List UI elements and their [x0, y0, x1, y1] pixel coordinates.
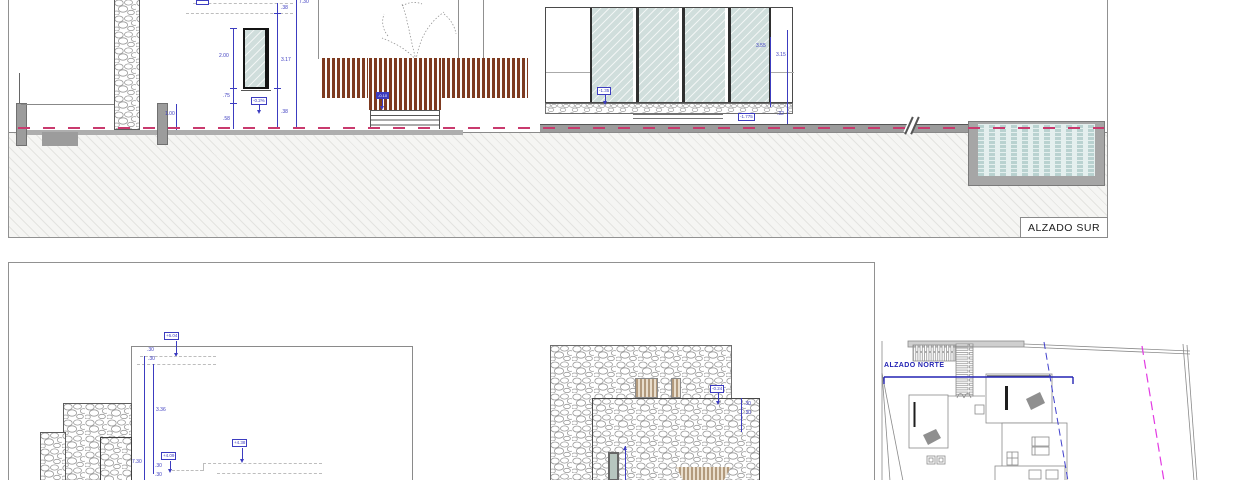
roofline-dash-riser — [203, 463, 204, 471]
fence-post-left — [16, 103, 27, 146]
dim-line-wall-total — [296, 0, 297, 129]
dim-pavilion-base: .32 — [777, 112, 784, 117]
roofline-dash-lower — [217, 473, 322, 474]
tree-sketch — [358, 0, 483, 62]
dim-cap-b: .30 — [148, 357, 155, 362]
boundary-line-magenta-dashed — [1142, 346, 1164, 480]
dim-base-band: .38 — [281, 110, 288, 115]
dim-tick — [274, 88, 281, 89]
dim-chimney-a: .30 — [744, 402, 751, 407]
dim-plinth: .58 — [223, 117, 230, 122]
pool-water — [978, 124, 1095, 176]
vent-trapezoid — [675, 467, 732, 480]
dim-line-north-total — [144, 356, 145, 480]
dim-tick — [230, 28, 237, 29]
wall-edge — [318, 0, 319, 59]
south-title: ALZADO SUR — [1028, 222, 1100, 234]
dim-roof-edge: .38 — [281, 6, 288, 11]
roofline-dash-low — [172, 470, 203, 471]
grade-line-red-dashed — [18, 127, 1104, 129]
leader-roof-mid — [242, 448, 243, 459]
dim-opening-total: 3.17 — [281, 58, 291, 63]
leader-parapet — [718, 392, 719, 401]
drawing-canvas: 1.00 2.00 .75 .58 .38 3.17 .38 7.30 -0.2… — [0, 0, 1250, 480]
dim-tick — [274, 13, 281, 14]
glass-panel-4 — [728, 8, 771, 102]
dim-line-upper-wall — [153, 364, 154, 474]
window-south — [243, 28, 269, 89]
level-tag-cut — [196, 0, 209, 5]
dim-tick — [230, 103, 237, 104]
dim-line-opening — [277, 3, 278, 129]
arrow-parapet — [716, 401, 720, 405]
dim-wall-total: 7.30 — [299, 0, 309, 5]
pavilion-stone-base — [545, 103, 793, 114]
arrow-window-north — [623, 446, 627, 450]
glass-pavilion — [545, 7, 793, 103]
dim-window-sill: .75 — [223, 94, 230, 99]
dim-pavilion-total: 3.15 — [776, 53, 786, 58]
pavilion-rail-right — [771, 72, 794, 73]
dim-upper-wall: 3.36 — [156, 408, 166, 413]
dim-fence-height: 1.00 — [165, 112, 175, 117]
leader-roof-low — [170, 461, 171, 469]
ground-hatch-south — [9, 132, 1107, 237]
dim-tick — [230, 88, 237, 89]
stone-column — [114, 0, 140, 130]
arrow-deck — [380, 106, 384, 110]
roofline-dash-mid — [203, 463, 322, 464]
level-tag-roof-mid: +4.38 — [232, 439, 247, 447]
dim-window-height: 2.00 — [219, 54, 229, 59]
pavilion-step — [633, 114, 723, 119]
stone-wall-step-low — [40, 432, 66, 480]
stone-wall-step-inner — [100, 437, 132, 480]
roof-slat-box-b — [671, 378, 681, 398]
ground-slab-left — [18, 130, 463, 135]
fence-post-right — [157, 103, 168, 145]
wood-slat-screen-left — [322, 58, 368, 98]
fence-rail — [21, 104, 116, 105]
slit-window-north — [608, 452, 619, 480]
north-building — [131, 346, 413, 480]
dim-cap-a: .30 — [147, 348, 154, 353]
dim-chimney-b: .30 — [744, 411, 751, 416]
wood-slat-screen-center — [369, 58, 441, 110]
dim-north-total: 7.30 — [132, 460, 142, 465]
dim-line-pavilion-total — [787, 30, 788, 129]
north-title: ALZADO NORTE — [884, 362, 944, 369]
fence-pole — [19, 73, 20, 103]
south-title-box: ALZADO SUR — [1020, 217, 1108, 238]
pavilion-rail-left — [546, 72, 590, 73]
wood-slat-screen-right — [442, 58, 528, 98]
level-tag-roof-low: +4.09 — [161, 452, 176, 460]
parapet-dash-b — [137, 364, 216, 365]
level-tag-pool-deck: -1.775 — [738, 113, 755, 121]
wall-edge — [483, 0, 484, 59]
arrow-pavilion-floor — [603, 101, 607, 105]
footing-block — [42, 132, 78, 146]
dim-line-pavilion-clear — [770, 37, 771, 107]
arrow-terrace-slope — [257, 110, 261, 114]
dim-pavilion-clear: 3.55 — [756, 44, 766, 49]
site-plan — [873, 330, 1203, 480]
dim-step-b: .30 — [155, 473, 162, 478]
roof-slat-box-a — [635, 378, 658, 398]
glass-panel-3 — [682, 8, 725, 102]
dim-step-a: .30 — [155, 464, 162, 469]
leader-pavilion-floor — [605, 94, 606, 101]
level-tag-roof-main: +6.04 — [164, 332, 179, 340]
leader-deck — [382, 99, 383, 106]
dim-line-window-north — [625, 446, 626, 480]
window-sill-line — [241, 90, 271, 91]
glass-panel-2 — [636, 8, 679, 102]
leader-roof-main — [176, 341, 177, 353]
dim-line-window — [233, 28, 234, 129]
dim-line-chimney — [741, 398, 742, 432]
